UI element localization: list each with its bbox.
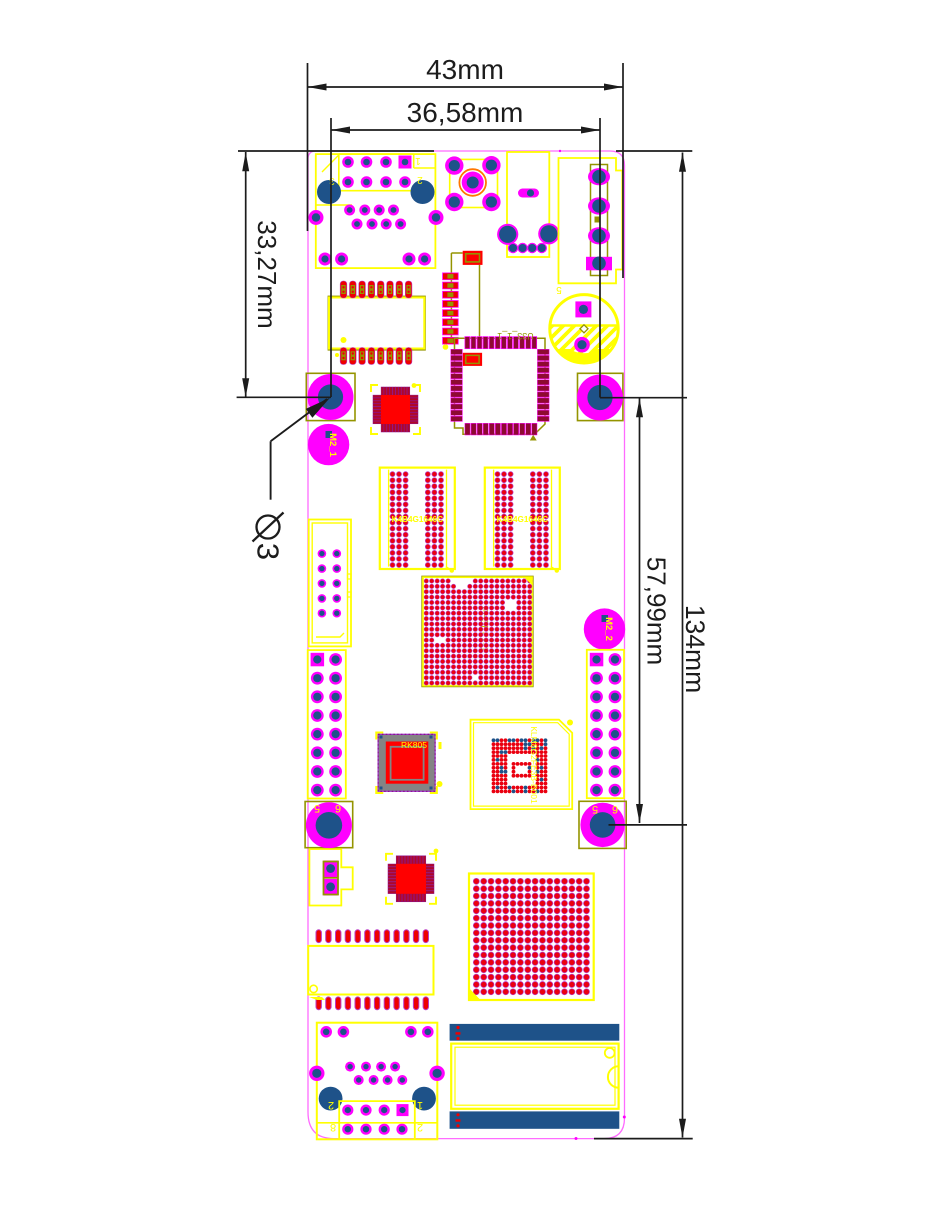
svg-text:KLM8G2FE3B-B001: KLM8G2FE3B-B001 bbox=[529, 726, 539, 804]
svg-text:RK805: RK805 bbox=[401, 740, 427, 750]
svg-text:1: 1 bbox=[417, 1099, 423, 1111]
svg-text:36,58mm: 36,58mm bbox=[407, 97, 524, 128]
svg-text:6: 6 bbox=[335, 802, 341, 814]
svg-text:5: 5 bbox=[592, 803, 598, 815]
svg-text:6: 6 bbox=[612, 803, 618, 815]
svg-text:8: 8 bbox=[330, 1121, 336, 1133]
svg-text:M2_1: M2_1 bbox=[327, 433, 338, 457]
svg-text:5: 5 bbox=[314, 802, 320, 814]
svg-text:3: 3 bbox=[251, 543, 286, 560]
svg-text:43mm: 43mm bbox=[426, 54, 504, 85]
svg-text:K4B4G1646C: K4B4G1646C bbox=[392, 515, 444, 524]
svg-text:134mm: 134mm bbox=[680, 605, 710, 693]
svg-text:2: 2 bbox=[417, 1121, 423, 1133]
svg-text:K4B4G1646C: K4B4G1646C bbox=[497, 515, 549, 524]
svg-text:1: 1 bbox=[415, 155, 421, 166]
svg-text:57,99mm: 57,99mm bbox=[642, 557, 672, 665]
svg-text:5: 5 bbox=[556, 284, 562, 295]
svg-text:33,27mm: 33,27mm bbox=[252, 220, 282, 328]
svg-text:U33_1_1: U33_1_1 bbox=[497, 331, 534, 341]
svg-text:2: 2 bbox=[328, 1099, 334, 1111]
svg-text:2: 2 bbox=[417, 174, 423, 185]
svg-text:M2_2: M2_2 bbox=[603, 617, 614, 641]
